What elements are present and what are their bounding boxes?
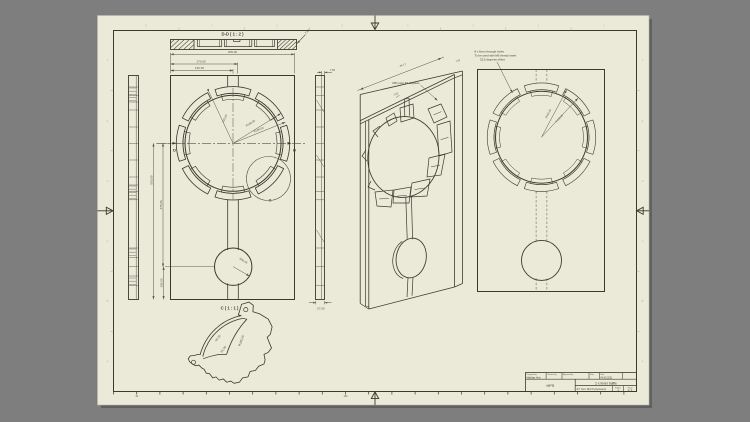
- svg-text:D: D: [293, 148, 296, 153]
- svg-text:D-D ( 1 : 2 ): D-D ( 1 : 2 ): [221, 32, 244, 37]
- svg-text:22,5 degrees offset: 22,5 degrees offset: [480, 58, 505, 62]
- svg-text:8 x 6mm through holes: 8 x 6mm through holes: [475, 50, 505, 54]
- svg-text:475,00: 475,00: [159, 200, 163, 210]
- svg-text:Designed by: Designed by: [527, 374, 537, 376]
- svg-text:27 mm birch plywood: 27 mm birch plywood: [577, 387, 607, 391]
- svg-text:550,00: 550,00: [149, 175, 153, 185]
- svg-text:170,00: 170,00: [196, 60, 206, 64]
- svg-text:C: C: [269, 198, 272, 203]
- svg-text:04-02-2021: 04-02-2021: [601, 377, 613, 379]
- svg-text:2 x Inner baffle: 2 x Inner baffle: [595, 381, 617, 385]
- svg-text:D: D: [173, 148, 176, 153]
- svg-text:HPS: HPS: [546, 384, 554, 388]
- svg-text:152,50: 152,50: [195, 66, 205, 70]
- svg-text:1 / 1: 1 / 1: [628, 389, 633, 392]
- svg-text:To be used with M6 thread inse: To be used with M6 thread insert: [475, 54, 517, 58]
- svg-text:185,00: 185,00: [159, 278, 163, 288]
- svg-text:M8 nuts/ 45 degrees: M8 nuts/ 45 degrees: [392, 81, 420, 85]
- svg-text:Checked by: Checked by: [547, 374, 557, 376]
- svg-text:C ( 1 : 1 ): C ( 1 : 1 ): [221, 306, 239, 311]
- svg-text:305,00: 305,00: [228, 50, 238, 54]
- svg-text:27,00: 27,00: [317, 306, 325, 310]
- svg-text:100: 100: [344, 395, 349, 398]
